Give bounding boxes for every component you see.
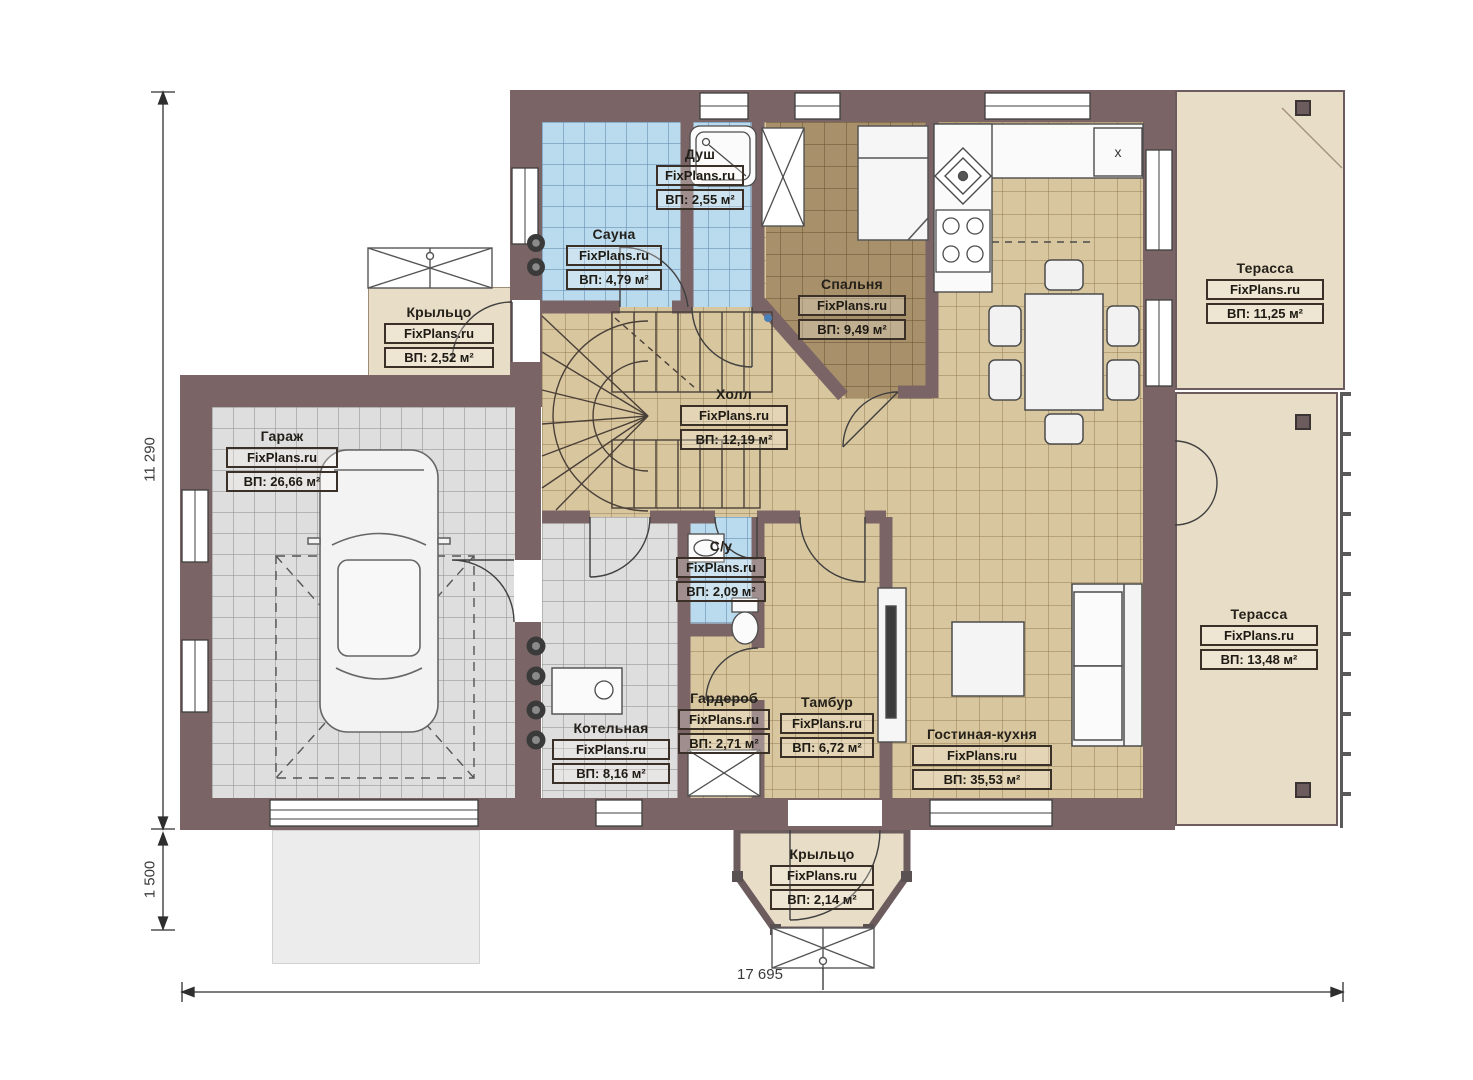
room-label-sauna: Сауна FixPlans.ru ВП: 4,79 м² [566, 226, 662, 290]
room-area: ВП: 2,55 м² [656, 189, 744, 210]
dimension-width-total: 17 695 [695, 966, 825, 983]
fridge-mark: x [1094, 128, 1142, 176]
room-name: Холл [680, 386, 788, 402]
room-area: ВП: 2,52 м² [384, 347, 494, 368]
car [308, 450, 450, 732]
room-name: С/у [676, 538, 766, 554]
terrace-column [1295, 782, 1311, 798]
room-watermark: FixPlans.ru [384, 323, 494, 344]
room-name: Сауна [566, 226, 662, 242]
room-watermark: FixPlans.ru [1206, 279, 1324, 300]
room-label-tambur: Тамбур FixPlans.ru ВП: 6,72 м² [780, 694, 874, 758]
room-watermark: FixPlans.ru [678, 709, 770, 730]
bed [858, 126, 928, 240]
room-watermark: FixPlans.ru [780, 713, 874, 734]
terrace-railing [1340, 392, 1351, 828]
room-area: ВП: 2,14 м² [770, 889, 874, 910]
room-watermark: FixPlans.ru [680, 405, 788, 426]
floor-plan: x Душ FixPlans.ru ВП: 2,55 м² Сауна FixP… [0, 0, 1473, 1080]
room-label-gostinaya: Гостиная-кухня FixPlans.ru ВП: 35,53 м² [912, 726, 1052, 790]
room-label-dush: Душ FixPlans.ru ВП: 2,55 м² [656, 146, 744, 210]
wardrobe-closet [688, 750, 760, 796]
room-label-krylco-left: Крыльцо FixPlans.ru ВП: 2,52 м² [384, 304, 494, 368]
room-label-garderob: Гардероб FixPlans.ru ВП: 2,71 м² [678, 690, 770, 754]
room-area: ВП: 9,49 м² [798, 319, 906, 340]
room-name: Котельная [552, 720, 670, 736]
room-watermark: FixPlans.ru [798, 295, 906, 316]
room-area: ВП: 8,16 м² [552, 763, 670, 784]
dimension-height-main: 11 290 [142, 415, 159, 505]
room-name: Крыльцо [384, 304, 494, 320]
room-name: Терасса [1200, 606, 1318, 622]
room-name: Гардероб [678, 690, 770, 706]
sofa [1072, 584, 1142, 746]
room-label-krylco-bottom: Крыльцо FixPlans.ru ВП: 2,14 м² [770, 846, 874, 910]
room-area: ВП: 13,48 м² [1200, 649, 1318, 670]
tv-console [878, 588, 906, 742]
terrace-column [1295, 100, 1311, 116]
room-name: Гостиная-кухня [912, 726, 1052, 742]
dimension-height-porch: 1 500 [142, 835, 159, 925]
room-name: Терасса [1206, 260, 1324, 276]
room-label-spalnya: Спальня FixPlans.ru ВП: 9,49 м² [798, 276, 906, 340]
roof-line [1282, 108, 1342, 168]
room-watermark: FixPlans.ru [676, 557, 766, 578]
room-area: ВП: 35,53 м² [912, 769, 1052, 790]
vent-shaft [762, 128, 804, 226]
room-area: ВП: 2,09 м² [676, 581, 766, 602]
room-label-terrasa-right: Терасса FixPlans.ru ВП: 13,48 м² [1200, 606, 1318, 670]
room-name: Крыльцо [770, 846, 874, 862]
room-label-terrasa-top: Терасса FixPlans.ru ВП: 11,25 м² [1206, 260, 1324, 324]
room-area: ВП: 6,72 м² [780, 737, 874, 758]
room-watermark: FixPlans.ru [1200, 625, 1318, 646]
room-watermark: FixPlans.ru [770, 865, 874, 886]
room-area: ВП: 12,19 м² [680, 429, 788, 450]
room-name: Гараж [226, 428, 338, 444]
room-area: ВП: 11,25 м² [1206, 303, 1324, 324]
toilet [732, 598, 758, 644]
room-area: ВП: 4,79 м² [566, 269, 662, 290]
room-label-kotelnaya: Котельная FixPlans.ru ВП: 8,16 м² [552, 720, 670, 784]
dining-table [989, 260, 1139, 444]
room-area: ВП: 2,71 м² [678, 733, 770, 754]
room-watermark: FixPlans.ru [656, 165, 744, 186]
room-label-su: С/у FixPlans.ru ВП: 2,09 м² [676, 538, 766, 602]
room-watermark: FixPlans.ru [566, 245, 662, 266]
room-name: Душ [656, 146, 744, 162]
room-watermark: FixPlans.ru [912, 745, 1052, 766]
coffee-table [952, 622, 1024, 696]
room-name: Тамбур [780, 694, 874, 710]
terrace-column [1295, 414, 1311, 430]
room-label-garazh: Гараж FixPlans.ru ВП: 26,66 м² [226, 428, 338, 492]
room-label-holl: Холл FixPlans.ru ВП: 12,19 м² [680, 386, 788, 450]
canopy-front-porch [772, 928, 874, 968]
room-name: Спальня [798, 276, 906, 292]
room-area: ВП: 26,66 м² [226, 471, 338, 492]
room-watermark: FixPlans.ru [226, 447, 338, 468]
stove [936, 210, 990, 272]
canopy-left-porch [368, 248, 492, 288]
room-watermark: FixPlans.ru [552, 739, 670, 760]
